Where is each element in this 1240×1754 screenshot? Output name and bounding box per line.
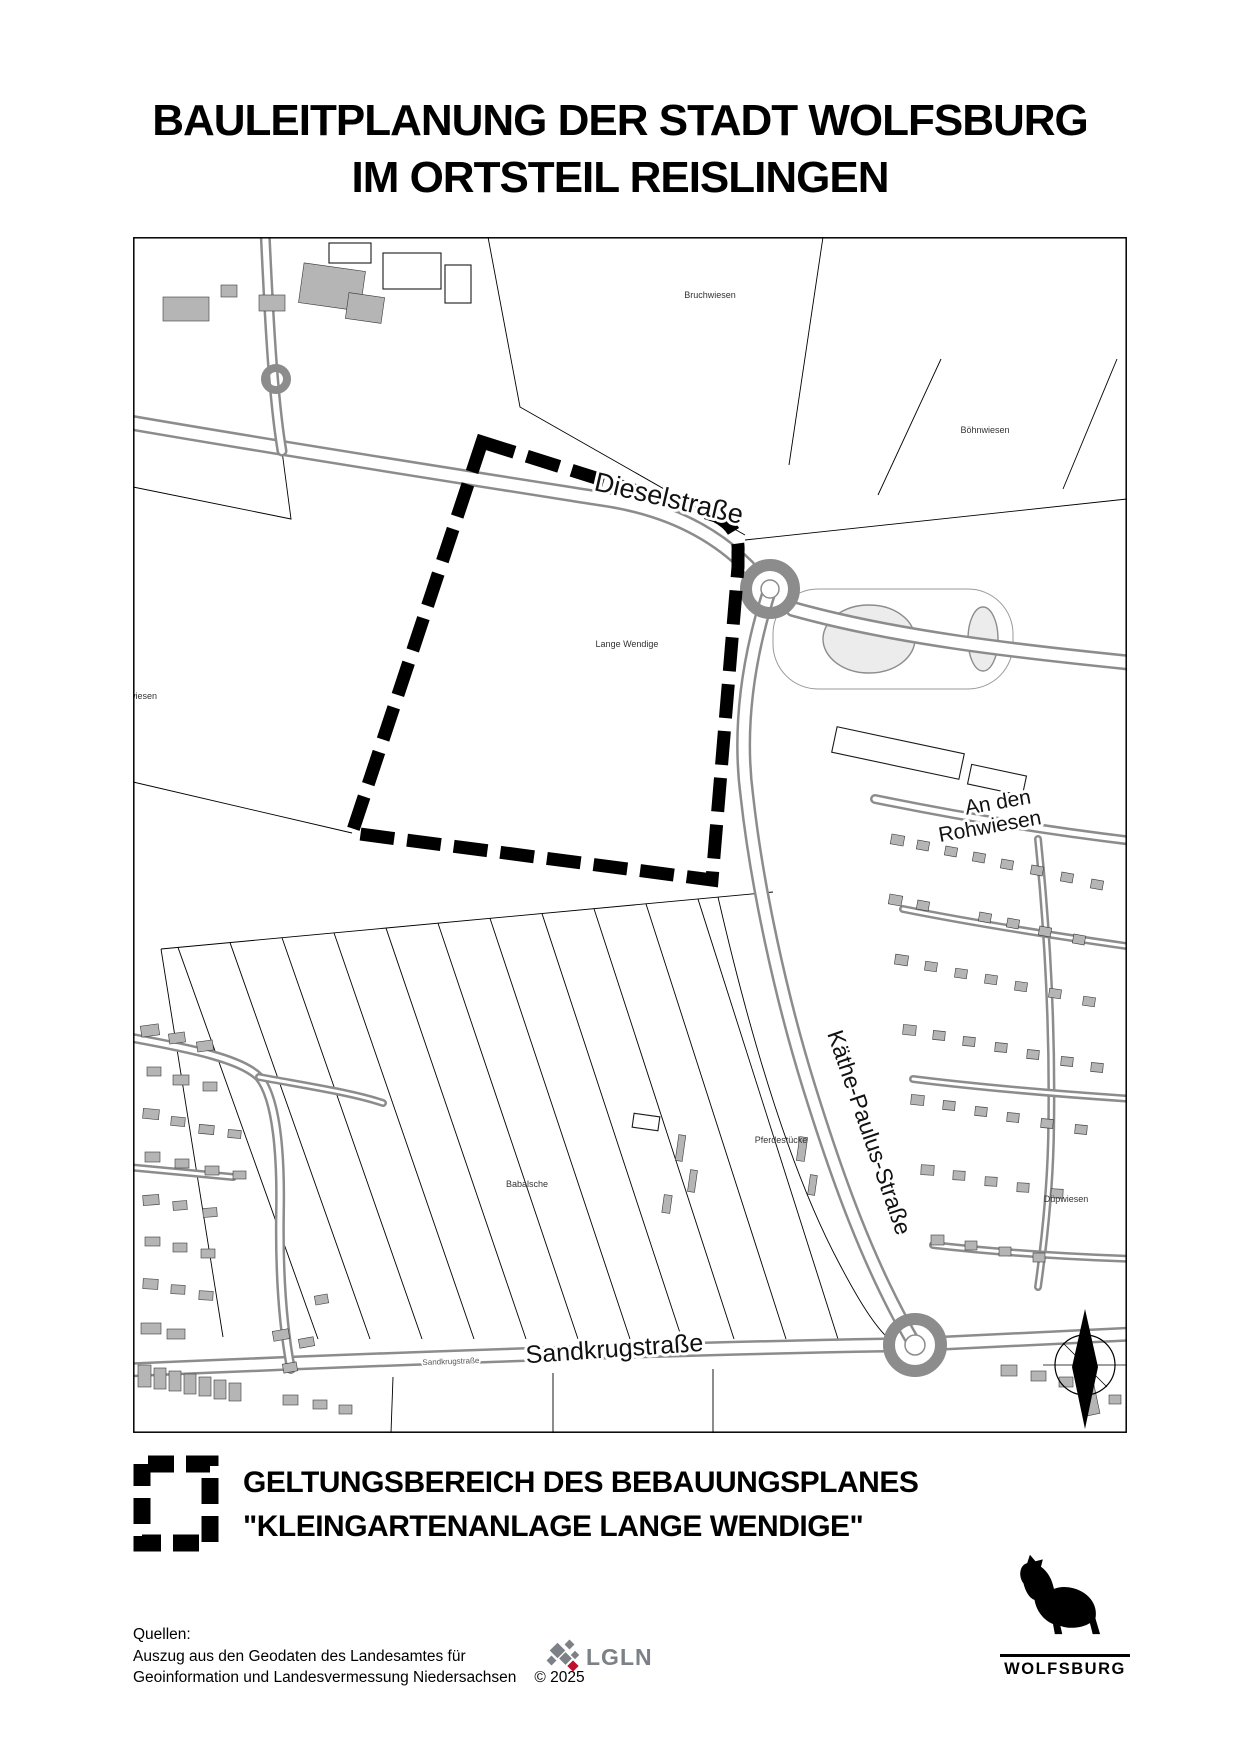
lgln-label: LGLN [586, 1644, 653, 1671]
field-label-boehnwiesen: Böhnwiesen [960, 425, 1009, 435]
street-label-sandkrugstrasse: Sandkrugstraße [525, 1329, 704, 1369]
field-label-lange-wendige: Lange Wendige [596, 639, 659, 649]
wolf-icon [1005, 1552, 1125, 1648]
document-page: BAULEITPLANUNG DER STADT WOLFSBURG IM OR… [0, 0, 1240, 1754]
lgln-logo: LGLN [545, 1638, 653, 1676]
wolfsburg-logo: WOLFSBURG [1000, 1552, 1130, 1679]
legend-text: GELTUNGSBEREICH DES BEBAUUNGSPLANES "KLE… [243, 1455, 918, 1549]
source-note: Quellen: Auszug aus den Geodaten des Lan… [133, 1624, 585, 1689]
page-title-line1: BAULEITPLANUNG DER STADT WOLFSBURG [0, 92, 1240, 149]
lgln-mark-icon [545, 1638, 583, 1676]
plan-boundary-symbol [133, 1455, 219, 1552]
field-label-babalsche: Babalsche [506, 1179, 548, 1189]
field-label-bruchwiesen: Bruchwiesen [684, 290, 736, 300]
legend-line1: GELTUNGSBEREICH DES BEBAUUNGSPLANES [243, 1461, 918, 1505]
street-label-sandkrugstrasse-small: Sandkrugstraße [422, 1356, 480, 1367]
wolfsburg-label: WOLFSBURG [1000, 1660, 1130, 1679]
source-line2: Geoinformation und Landesvermessung Nied… [133, 1667, 585, 1689]
wolfsburg-logo-line [1000, 1654, 1130, 1657]
page-title: BAULEITPLANUNG DER STADT WOLFSBURG IM OR… [0, 92, 1240, 206]
street-label-kaethe-paulus-strasse: Käthe-Paulus-Straße [822, 1027, 917, 1239]
legend: GELTUNGSBEREICH DES BEBAUUNGSPLANES "KLE… [133, 1455, 918, 1552]
map-area: Dieselstraße Käthe-Paulus-Straße Sandkru… [133, 237, 1127, 1433]
north-arrow [1043, 1309, 1127, 1429]
page-title-line2: IM ORTSTEIL REISLINGEN [0, 149, 1240, 206]
field-label-wiesen-partial: wiesen [133, 691, 157, 701]
city-map: Dieselstraße Käthe-Paulus-Straße Sandkru… [133, 237, 1127, 1433]
legend-line2: "KLEINGARTENANLAGE LANGE WENDIGE" [243, 1505, 918, 1549]
field-label-duepwiesen: Düpwiesen [1044, 1194, 1089, 1204]
source-heading: Quellen: [133, 1624, 585, 1646]
field-label-pferdestuecke: Pferdestücke [755, 1135, 808, 1145]
source-line1: Auszug aus den Geodaten des Landesamtes … [133, 1646, 585, 1668]
